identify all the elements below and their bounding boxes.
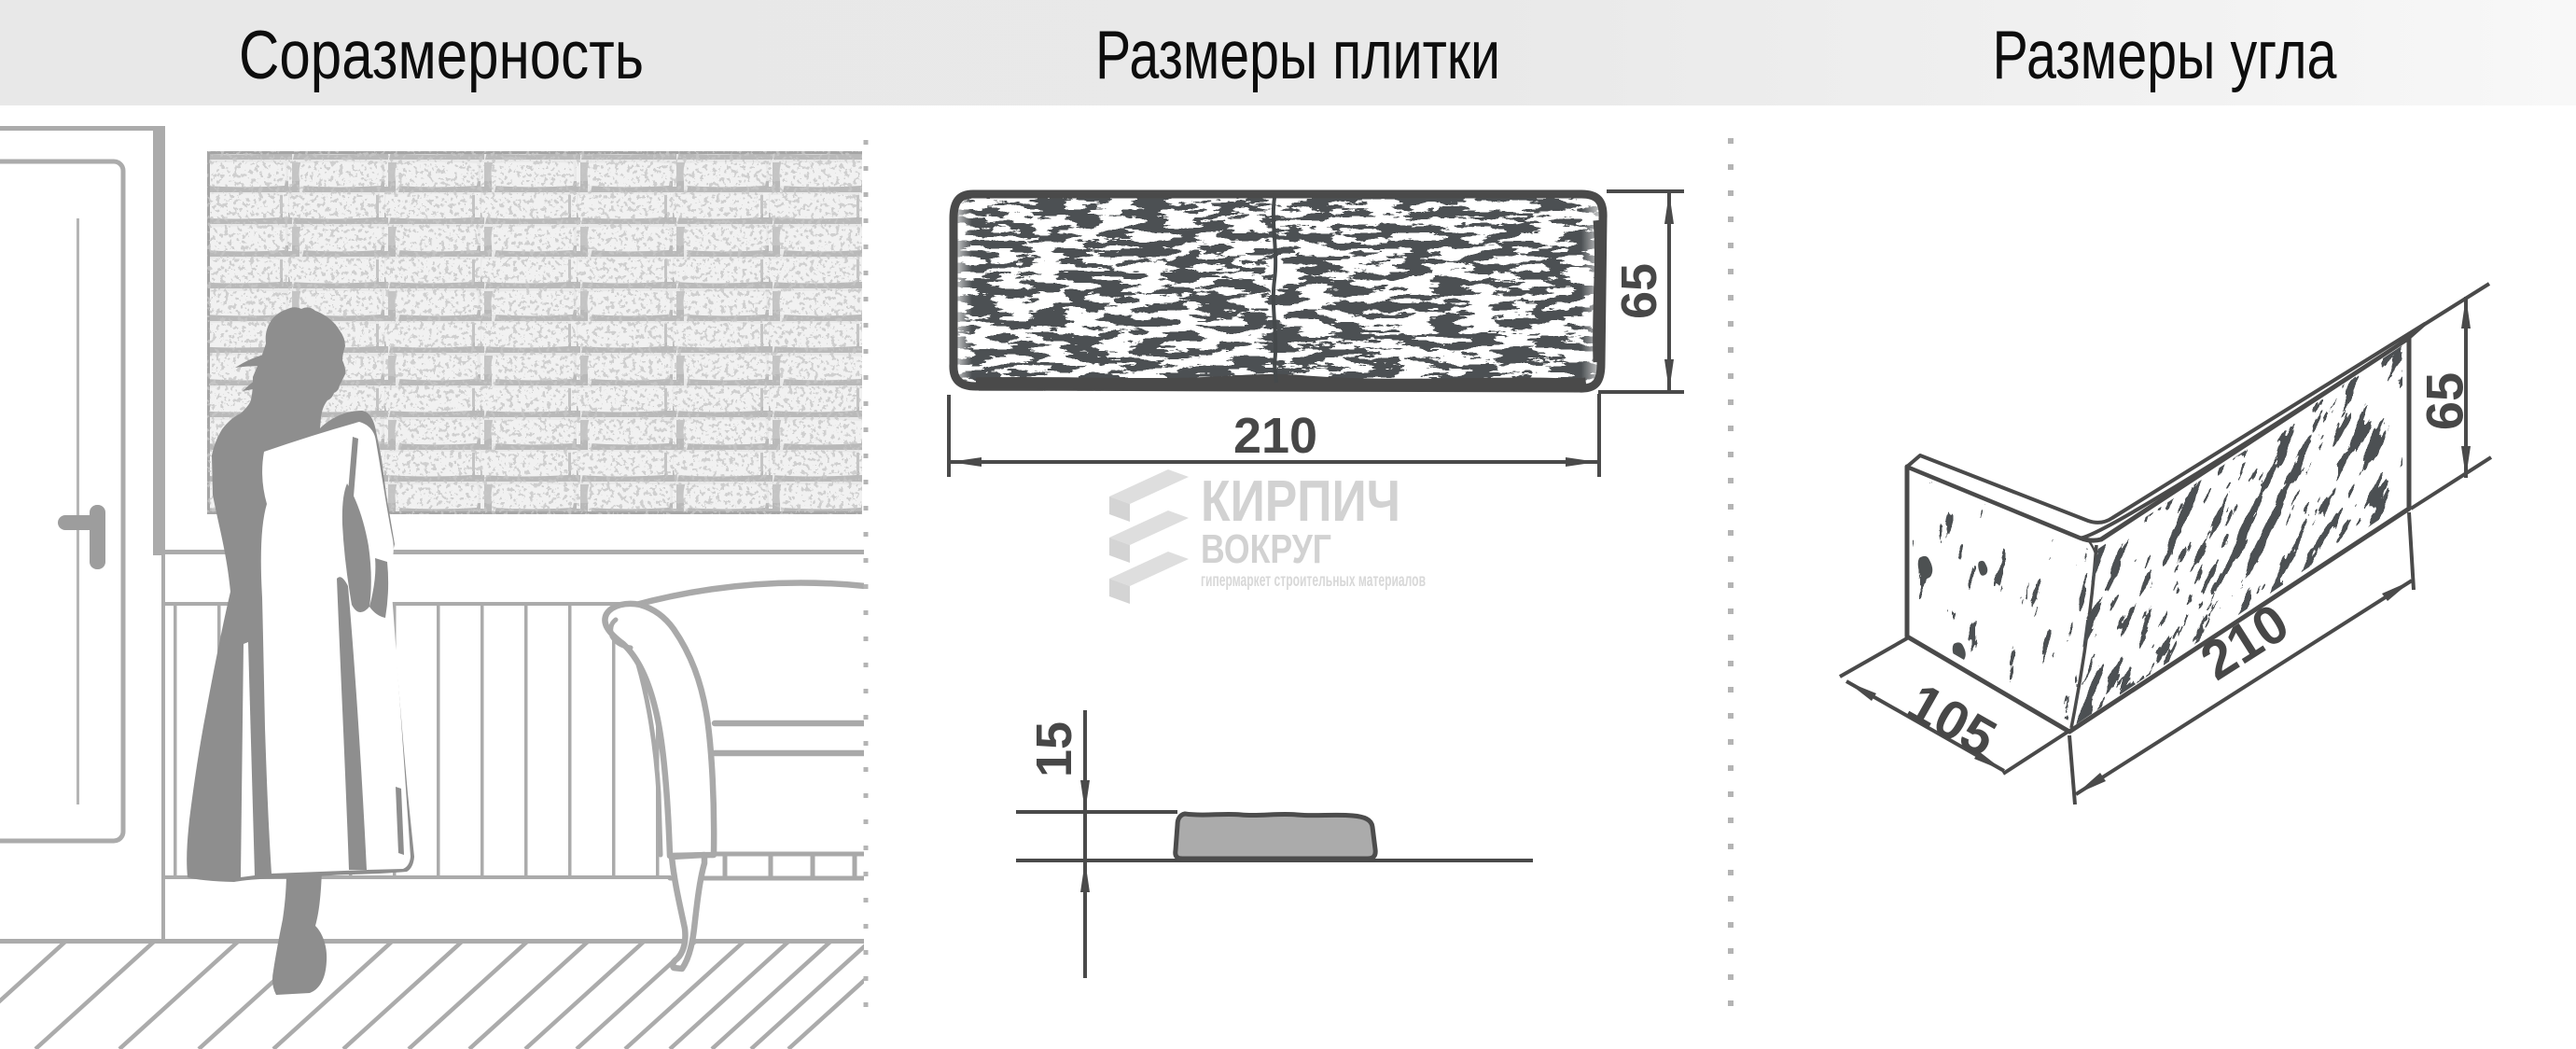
svg-text:Соразмерность: Соразмерность [239,18,644,93]
svg-text:гипермаркет строительных матер: гипермаркет строительных материалов [1201,571,1426,591]
svg-text:Размеры плитки: Размеры плитки [1095,18,1500,93]
svg-text:ВОКРУГ: ВОКРУГ [1201,526,1331,572]
svg-text:65: 65 [2416,372,2474,430]
svg-text:65: 65 [1611,263,1667,319]
svg-text:210: 210 [1233,408,1317,464]
svg-text:Размеры угла: Размеры угла [1993,18,2337,93]
svg-text:КИРПИЧ: КИРПИЧ [1201,469,1400,534]
svg-text:15: 15 [1026,721,1082,777]
